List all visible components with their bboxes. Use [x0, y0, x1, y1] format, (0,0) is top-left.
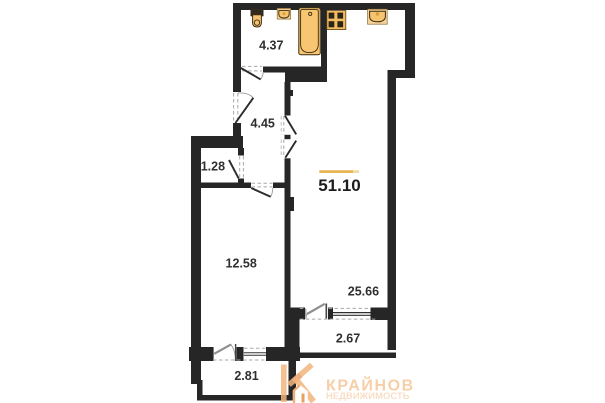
svg-text:51.10: 51.10 — [318, 176, 361, 195]
svg-text:2.67: 2.67 — [336, 332, 360, 346]
svg-text:25.66: 25.66 — [348, 284, 379, 298]
svg-text:4.37: 4.37 — [259, 39, 283, 53]
svg-text:4.45: 4.45 — [251, 116, 275, 130]
svg-text:1.28: 1.28 — [201, 159, 225, 173]
svg-text:2.81: 2.81 — [234, 369, 258, 383]
svg-text:НЕДВИЖИМОСТЬ: НЕДВИЖИМОСТЬ — [326, 391, 410, 401]
svg-text:12.58: 12.58 — [226, 256, 257, 270]
